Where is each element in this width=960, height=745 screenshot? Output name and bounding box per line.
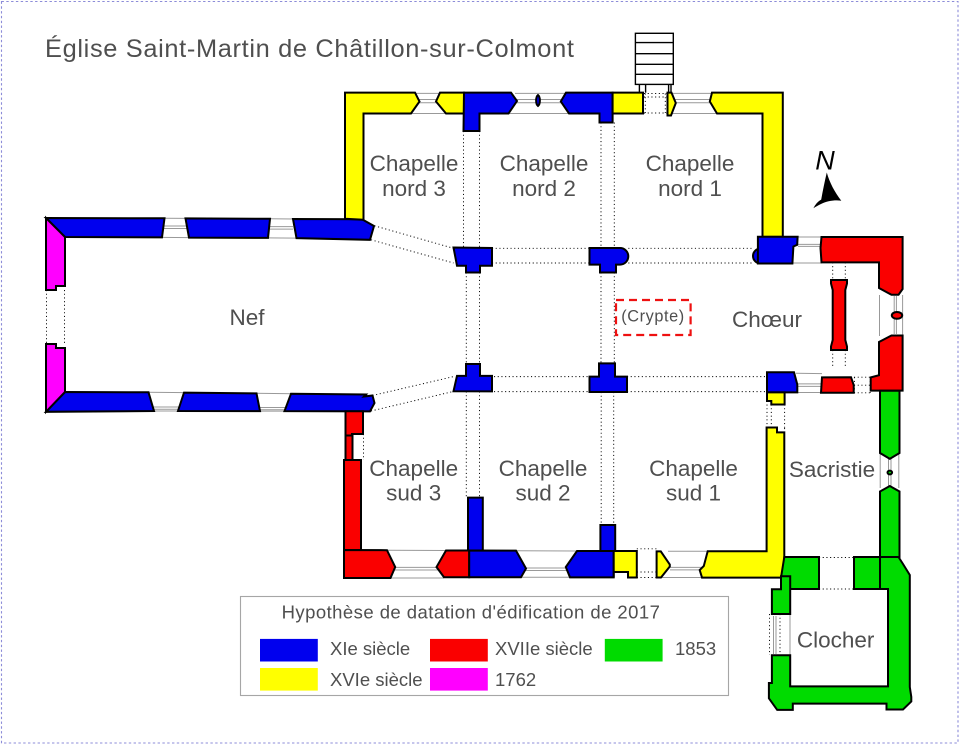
svg-text:sud 1: sud 1: [666, 481, 721, 506]
svg-text:Hypothèse de datation d'édific: Hypothèse de datation d'édification de 2…: [282, 602, 661, 623]
svg-text:Chœur: Chœur: [732, 307, 803, 332]
svg-text:Nef: Nef: [229, 305, 265, 330]
svg-text:XVIIe siècle: XVIIe siècle: [495, 638, 593, 659]
svg-text:Clocher: Clocher: [797, 628, 875, 653]
svg-text:sud 2: sud 2: [515, 481, 570, 506]
svg-text:(Crypte): (Crypte): [621, 308, 685, 326]
svg-text:Chapelle: Chapelle: [646, 151, 735, 176]
svg-text:XIe siècle: XIe siècle: [330, 638, 410, 659]
svg-text:1762: 1762: [495, 669, 536, 690]
svg-text:XVIe siècle: XVIe siècle: [330, 669, 423, 690]
svg-text:Chapelle: Chapelle: [499, 456, 588, 481]
svg-text:Chapelle: Chapelle: [649, 456, 738, 481]
svg-text:Sacristie: Sacristie: [789, 457, 875, 482]
svg-text:Église Saint-Martin de Châtill: Église Saint-Martin de Châtillon-sur-Col…: [45, 34, 575, 63]
svg-text:Chapelle: Chapelle: [500, 151, 589, 176]
svg-text:1853: 1853: [675, 638, 716, 659]
svg-text:nord 1: nord 1: [658, 176, 722, 201]
svg-text:Chapelle: Chapelle: [369, 456, 458, 481]
svg-text:nord 2: nord 2: [512, 176, 576, 201]
svg-text:Chapelle: Chapelle: [370, 151, 459, 176]
svg-text:sud 3: sud 3: [386, 481, 441, 506]
svg-text:N: N: [815, 146, 835, 176]
svg-text:nord 3: nord 3: [382, 176, 446, 201]
